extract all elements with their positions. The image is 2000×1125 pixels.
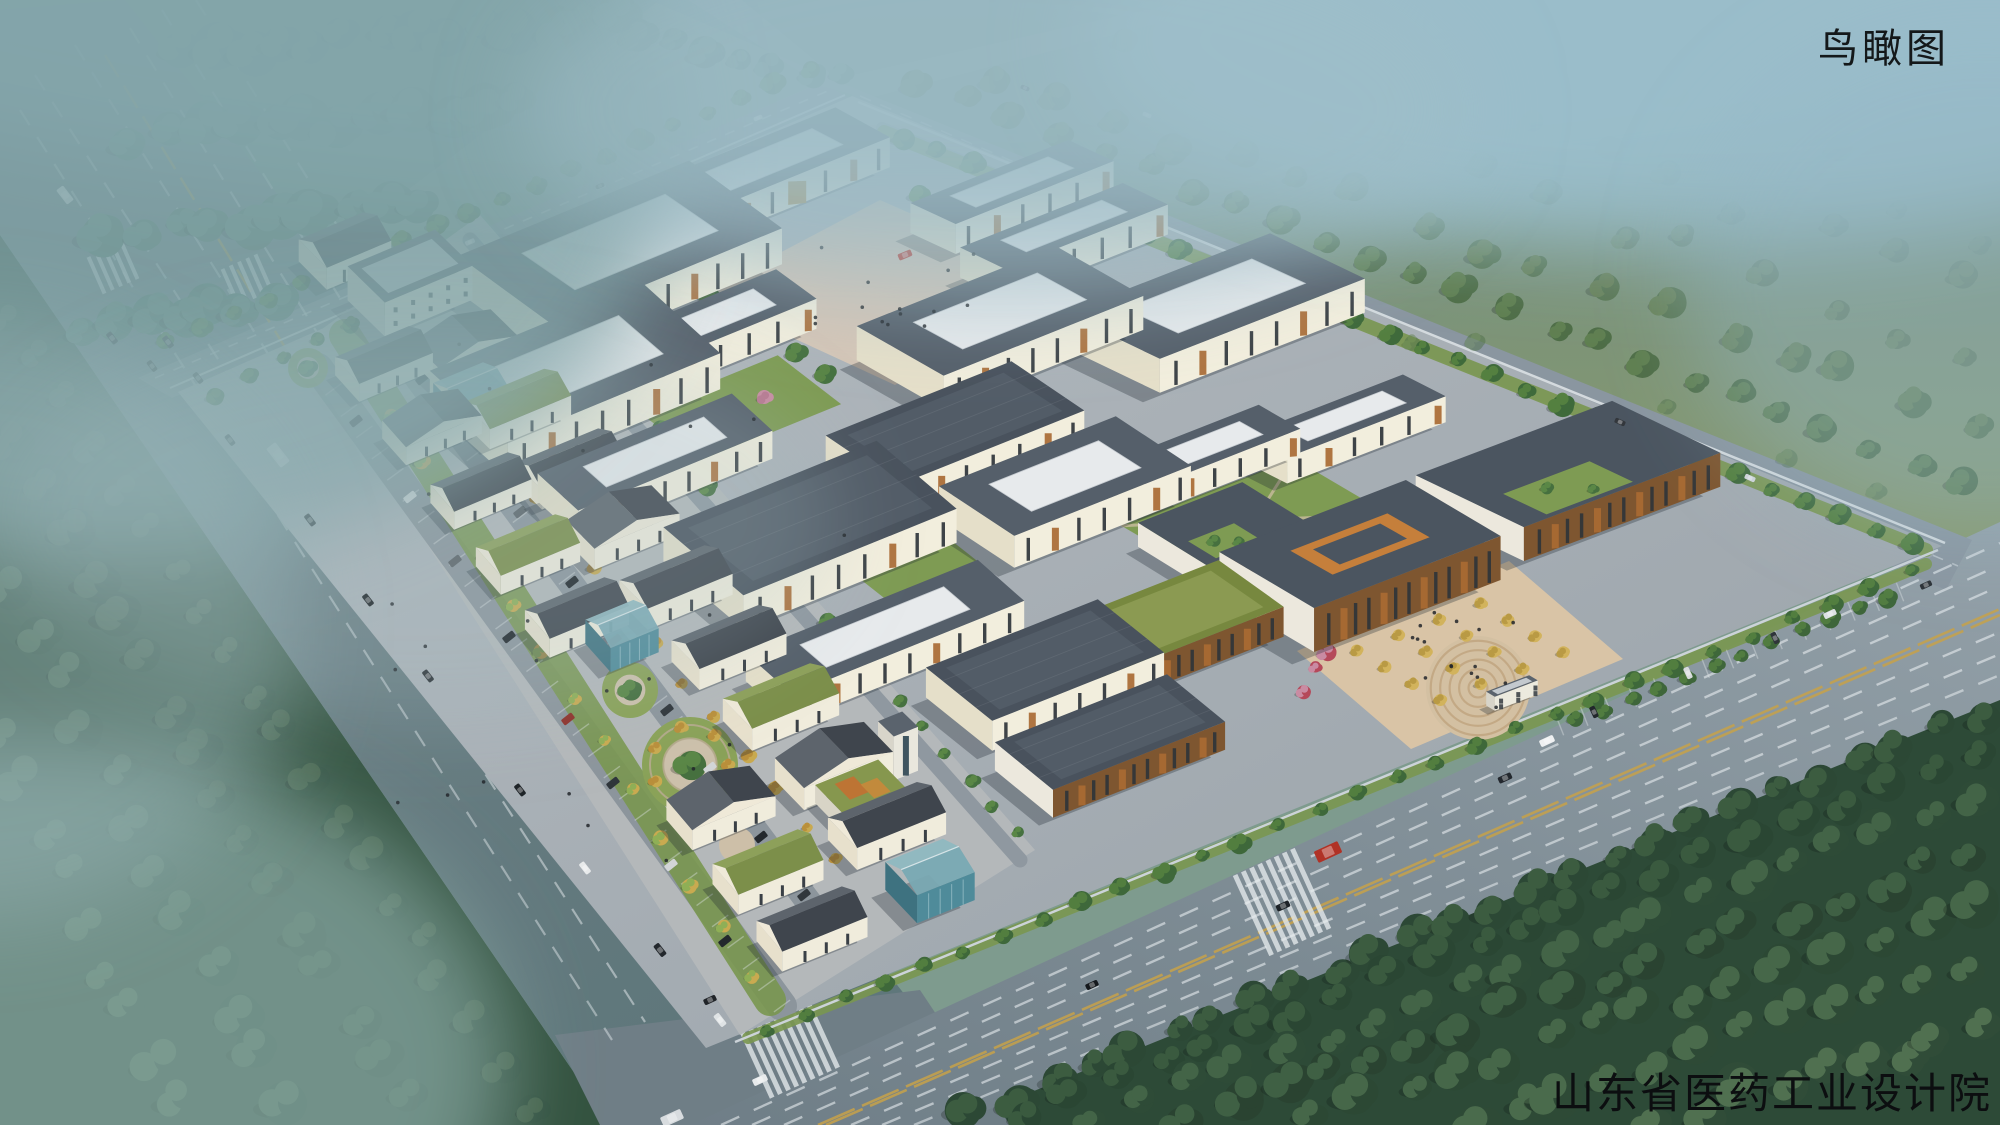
person-dot [1476, 675, 1480, 679]
person-dot [1477, 628, 1481, 632]
person-dot [586, 824, 590, 828]
person-dot [567, 792, 571, 796]
person-dot [446, 793, 450, 797]
person-dot [923, 324, 927, 328]
person-dot [814, 322, 818, 326]
person-dot [1473, 665, 1477, 669]
person-dot [932, 310, 936, 314]
person-dot [692, 767, 696, 771]
person-dot [1424, 676, 1428, 680]
person-dot [664, 859, 668, 863]
person-dot [1411, 636, 1415, 640]
person-dot [1433, 611, 1437, 615]
tree-cluster [1465, 737, 1488, 755]
person-dot [1419, 624, 1423, 628]
person-dot [1511, 621, 1515, 625]
person-dot [898, 307, 902, 311]
person-dot [1449, 664, 1453, 668]
view-title-label: 鸟瞰图 [1818, 16, 1950, 74]
tree-cluster [1624, 691, 1642, 705]
person-dot [880, 320, 884, 324]
person-dot [1470, 671, 1474, 675]
mist-haze [0, 320, 840, 720]
tree-cluster [1269, 818, 1285, 831]
person-dot [1504, 681, 1508, 685]
design-institute-credit: 山东省医药工业设计院 [1552, 1060, 1992, 1121]
person-dot [396, 801, 400, 805]
person-dot [1494, 705, 1498, 709]
person-dot [728, 743, 732, 747]
person-dot [1423, 640, 1427, 644]
aerial-rendering-stage: 鸟瞰图 山东省医药工业设计院 [0, 0, 2000, 1125]
person-dot [886, 323, 890, 327]
person-dot [1416, 637, 1420, 641]
person-dot [814, 316, 818, 320]
person-dot [860, 305, 864, 309]
masterplan-aerial-view [0, 0, 2000, 1125]
person-dot [482, 780, 486, 784]
person-dot [842, 533, 846, 537]
person-dot [1455, 620, 1459, 624]
person-dot [899, 312, 903, 316]
